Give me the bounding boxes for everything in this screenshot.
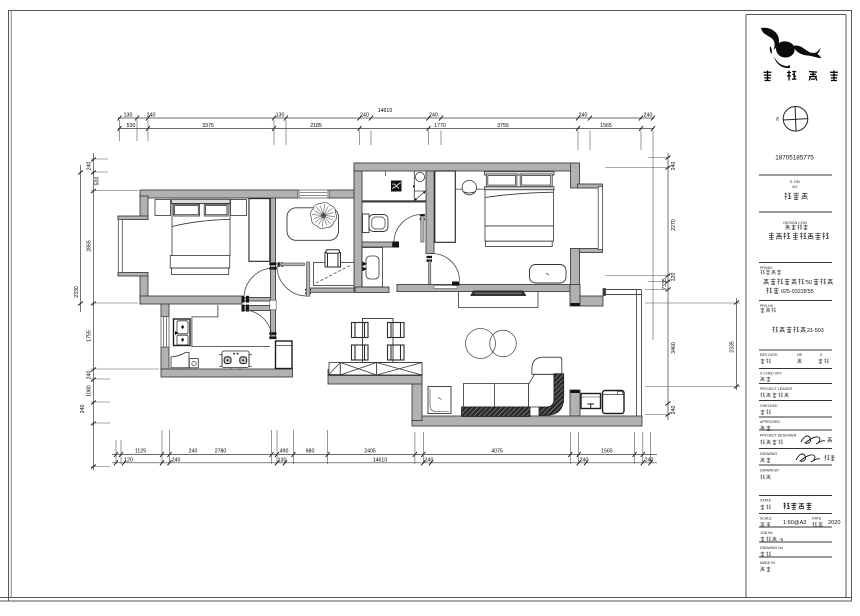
svg-text:REV DATE: REV DATE bbox=[760, 353, 778, 357]
svg-text:240: 240 bbox=[87, 371, 93, 380]
svg-text:1:60@A3: 1:60@A3 bbox=[783, 520, 806, 526]
svg-text:DRAWING No: DRAWING No bbox=[760, 546, 783, 550]
svg-text:490: 490 bbox=[280, 449, 289, 455]
svg-text:5: 5 bbox=[820, 353, 822, 357]
svg-text:DESIGN COM: DESIGN COM bbox=[783, 221, 806, 225]
svg-text:240: 240 bbox=[645, 457, 654, 463]
svg-text:2405: 2405 bbox=[364, 449, 376, 455]
svg-text:3460: 3460 bbox=[671, 342, 677, 354]
svg-text:DATE: DATE bbox=[812, 517, 822, 521]
svg-text:130: 130 bbox=[278, 457, 287, 463]
svg-text:21-503: 21-503 bbox=[807, 328, 824, 334]
svg-text:240: 240 bbox=[80, 405, 86, 414]
svg-text:240: 240 bbox=[360, 113, 369, 119]
svg-text:XU': XU' bbox=[792, 185, 798, 189]
svg-text:SCALE: SCALE bbox=[760, 517, 772, 521]
svg-text:JOB No: JOB No bbox=[760, 531, 773, 535]
svg-text:2780: 2780 bbox=[215, 449, 227, 455]
svg-text:STATE: STATE bbox=[760, 499, 772, 503]
svg-text:240: 240 bbox=[644, 113, 653, 119]
svg-text:240: 240 bbox=[87, 162, 93, 171]
svg-text:1770: 1770 bbox=[434, 123, 446, 129]
svg-text:500: 500 bbox=[95, 177, 101, 186]
svg-text:DRAWN BY: DRAWN BY bbox=[760, 469, 780, 473]
svg-text:025-03228'55: 025-03228'55 bbox=[781, 289, 814, 295]
svg-text:14610: 14610 bbox=[378, 108, 393, 114]
svg-text:240: 240 bbox=[579, 113, 588, 119]
svg-text:4075: 4075 bbox=[491, 449, 503, 455]
svg-text:S, DK/: S, DK/ bbox=[790, 180, 800, 184]
svg-text:3375: 3375 bbox=[202, 123, 214, 129]
svg-text:240: 240 bbox=[580, 457, 589, 463]
svg-text:1565: 1565 bbox=[601, 449, 613, 455]
svg-text:240: 240 bbox=[147, 113, 156, 119]
svg-text:CHECKED: CHECKED bbox=[760, 404, 778, 408]
svg-text:2270: 2270 bbox=[671, 219, 677, 231]
svg-text:2865: 2865 bbox=[87, 240, 93, 252]
svg-text:2020: 2020 bbox=[828, 520, 840, 526]
svg-text:-5: -5 bbox=[779, 537, 784, 542]
svg-text:NE: NE bbox=[797, 353, 803, 357]
svg-text:PPA-HX: PPA-HX bbox=[760, 304, 774, 308]
svg-text:2185: 2185 bbox=[310, 123, 322, 129]
svg-text:240: 240 bbox=[172, 457, 181, 463]
svg-text:MADE IN: MADE IN bbox=[760, 561, 775, 565]
svg-text:120: 120 bbox=[671, 273, 677, 282]
svg-text:3755: 3755 bbox=[497, 123, 509, 129]
svg-text:PPA/83: PPA/83 bbox=[760, 266, 772, 270]
svg-text:240: 240 bbox=[671, 162, 677, 171]
svg-text:980: 980 bbox=[306, 449, 315, 455]
svg-text:240: 240 bbox=[671, 406, 677, 415]
svg-text:2335: 2335 bbox=[730, 341, 736, 353]
svg-text:PROJECT DESIGNER: PROJECT DESIGNER bbox=[760, 434, 797, 438]
svg-text:240: 240 bbox=[429, 113, 438, 119]
svg-text:18705185775: 18705185775 bbox=[775, 155, 814, 162]
svg-text:N: N bbox=[775, 117, 780, 120]
svg-text:240: 240 bbox=[425, 457, 434, 463]
svg-text:130: 130 bbox=[276, 113, 285, 119]
svg-text:1755: 1755 bbox=[87, 330, 93, 342]
svg-text:APPROVED: APPROVED bbox=[760, 420, 780, 424]
svg-text:PROJECT LEADER: PROJECT LEADER bbox=[760, 387, 792, 391]
svg-text:1565: 1565 bbox=[600, 123, 612, 129]
svg-text:S CHED OFF: S CHED OFF bbox=[760, 372, 783, 376]
svg-text:7335: 7335 bbox=[662, 278, 668, 290]
svg-text:'50: '50 bbox=[805, 280, 812, 286]
svg-text:130: 130 bbox=[124, 113, 133, 119]
svg-text:1125: 1125 bbox=[135, 449, 146, 455]
svg-text:14610: 14610 bbox=[373, 457, 388, 463]
svg-text:2330: 2330 bbox=[74, 286, 80, 298]
svg-text:120: 120 bbox=[124, 457, 133, 463]
svg-text:530: 530 bbox=[127, 123, 136, 129]
svg-text:1080: 1080 bbox=[87, 385, 93, 397]
svg-text:DRAWING: DRAWING bbox=[760, 452, 777, 456]
svg-text:240: 240 bbox=[189, 449, 198, 455]
